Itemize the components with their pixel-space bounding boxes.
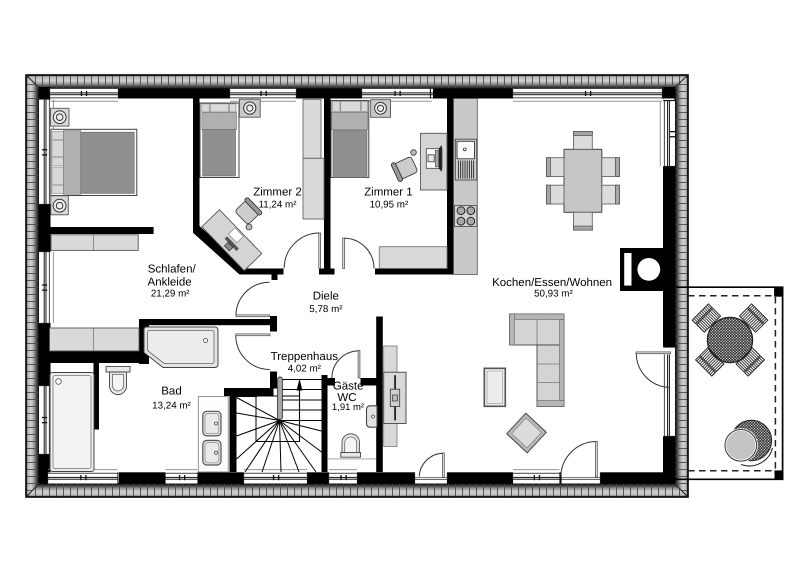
svg-text:Treppenhaus: Treppenhaus [271, 351, 339, 363]
svg-text:21,29 m²: 21,29 m² [151, 288, 190, 299]
svg-text:4,02 m²: 4,02 m² [288, 364, 322, 375]
svg-text:5,78 m²: 5,78 m² [309, 304, 343, 315]
svg-text:Diele: Diele [313, 290, 339, 302]
svg-text:1,91 m²: 1,91 m² [332, 402, 364, 413]
svg-text:13,24 m²: 13,24 m² [152, 401, 191, 412]
svg-text:Kochen/Essen/Wohnen: Kochen/Essen/Wohnen [492, 277, 612, 289]
svg-text:10,95 m²: 10,95 m² [370, 199, 409, 210]
svg-text:50,93 m²: 50,93 m² [534, 288, 573, 299]
svg-text:Schlafen/: Schlafen/ [148, 264, 197, 276]
svg-text:Ankleide: Ankleide [148, 277, 192, 289]
svg-text:Gäste: Gäste [333, 381, 364, 393]
svg-text:11,24 m²: 11,24 m² [259, 199, 298, 210]
svg-text:Bad: Bad [161, 385, 181, 397]
svg-text:Zimmer 1: Zimmer 1 [364, 186, 413, 198]
svg-text:Zimmer 2: Zimmer 2 [253, 186, 302, 198]
